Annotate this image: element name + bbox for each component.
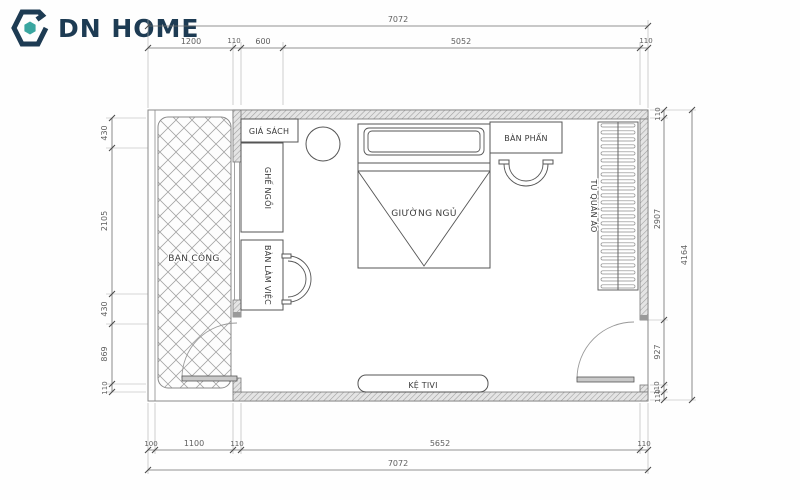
wardrobe (598, 122, 638, 290)
extension-lines-top (148, 20, 648, 108)
logo-hexagon-icon (14, 12, 46, 44)
dim-bottom-total: 7072 (388, 459, 408, 468)
dim-top-5: 110 (639, 37, 652, 45)
floor-plan-drawing: DN HOME 7072 1200 110 600 5052 110 430 2… (0, 0, 800, 500)
floor-plan-page: DN HOME 7072 1200 110 600 5052 110 430 2… (0, 0, 800, 500)
dim-left-5: 110 (101, 381, 109, 394)
wall-right-stub (640, 385, 648, 392)
wall-right (640, 119, 648, 320)
dim-left-4: 869 (100, 346, 109, 361)
dim-left-2: 2105 (100, 211, 109, 231)
round-side-table (306, 127, 340, 161)
dim-bottom-5: 110 (637, 440, 650, 448)
dim-top-total: 7072 (388, 15, 408, 24)
bed (358, 124, 490, 268)
brand-text: DN HOME (58, 14, 200, 43)
dim-right-3: 927 (653, 344, 662, 359)
label-tv-shelf: KỆ TIVI (408, 379, 437, 391)
seat-bench (241, 143, 283, 232)
dim-bottom-3: 110 (230, 440, 243, 448)
dim-right-2: 2907 (653, 209, 662, 229)
label-desk: BÀN LÀM VIỆC (262, 245, 274, 305)
dim-right-total: 4164 (680, 245, 689, 265)
dim-bottom-2: 1100 (184, 439, 204, 448)
dim-bottom-1: 100 (144, 440, 157, 448)
dim-left-1: 430 (100, 125, 109, 140)
label-bed: GIƯỜNG NGỦ (391, 207, 456, 219)
dim-bottom-4: 5652 (430, 439, 450, 448)
wall-partition-upper (233, 110, 241, 162)
label-balcony: BAN CÔNG (168, 252, 219, 264)
label-bookshelf: GIÁ SÁCH (249, 125, 289, 136)
wall-top (233, 110, 648, 119)
dim-left-3: 430 (100, 301, 109, 316)
extension-lines-left (106, 118, 152, 392)
wall-bottom (233, 392, 648, 401)
dim-top-1: 1200 (181, 37, 201, 46)
dim-top-4: 5052 (451, 37, 471, 46)
work-desk (241, 240, 283, 310)
logo: DN HOME (14, 12, 200, 44)
dim-top-3: 600 (255, 37, 270, 46)
dim-right-5: 110 (654, 389, 662, 402)
dim-top-2: 110 (227, 37, 240, 45)
label-vanity: BÀN PHẤN (504, 132, 547, 143)
dim-right-1: 110 (654, 107, 662, 120)
balcony-lattice (158, 117, 231, 388)
